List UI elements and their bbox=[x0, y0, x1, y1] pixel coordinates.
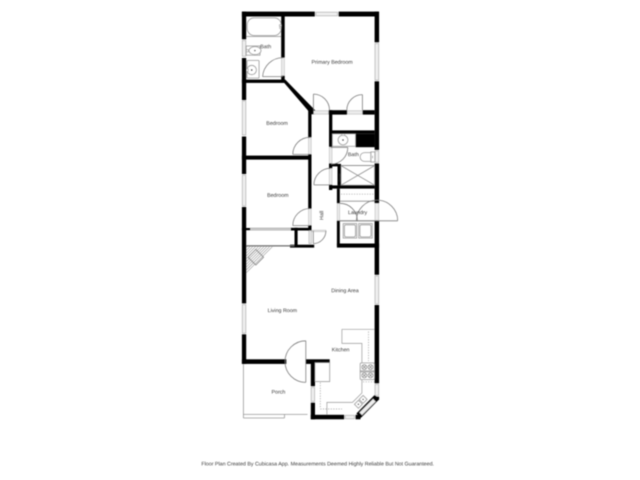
svg-text:Bath: Bath bbox=[260, 44, 271, 50]
svg-text:Bedroom: Bedroom bbox=[267, 193, 289, 199]
svg-text:Bedroom: Bedroom bbox=[266, 121, 288, 127]
svg-text:Kitchen: Kitchen bbox=[332, 347, 350, 353]
svg-text:Floor Plan Created By Cubicasa: Floor Plan Created By Cubicasa App. Meas… bbox=[201, 461, 434, 467]
svg-text:Dining Area: Dining Area bbox=[331, 288, 358, 294]
svg-text:Laundry: Laundry bbox=[348, 210, 367, 216]
svg-text:Porch: Porch bbox=[271, 390, 285, 396]
svg-text:Primary Bedroom: Primary Bedroom bbox=[311, 60, 353, 66]
svg-text:Living Room: Living Room bbox=[268, 308, 298, 314]
svg-text:Hall: Hall bbox=[319, 211, 325, 220]
svg-text:Bath: Bath bbox=[348, 152, 359, 158]
svg-text:Closet: Closet bbox=[338, 173, 342, 181]
